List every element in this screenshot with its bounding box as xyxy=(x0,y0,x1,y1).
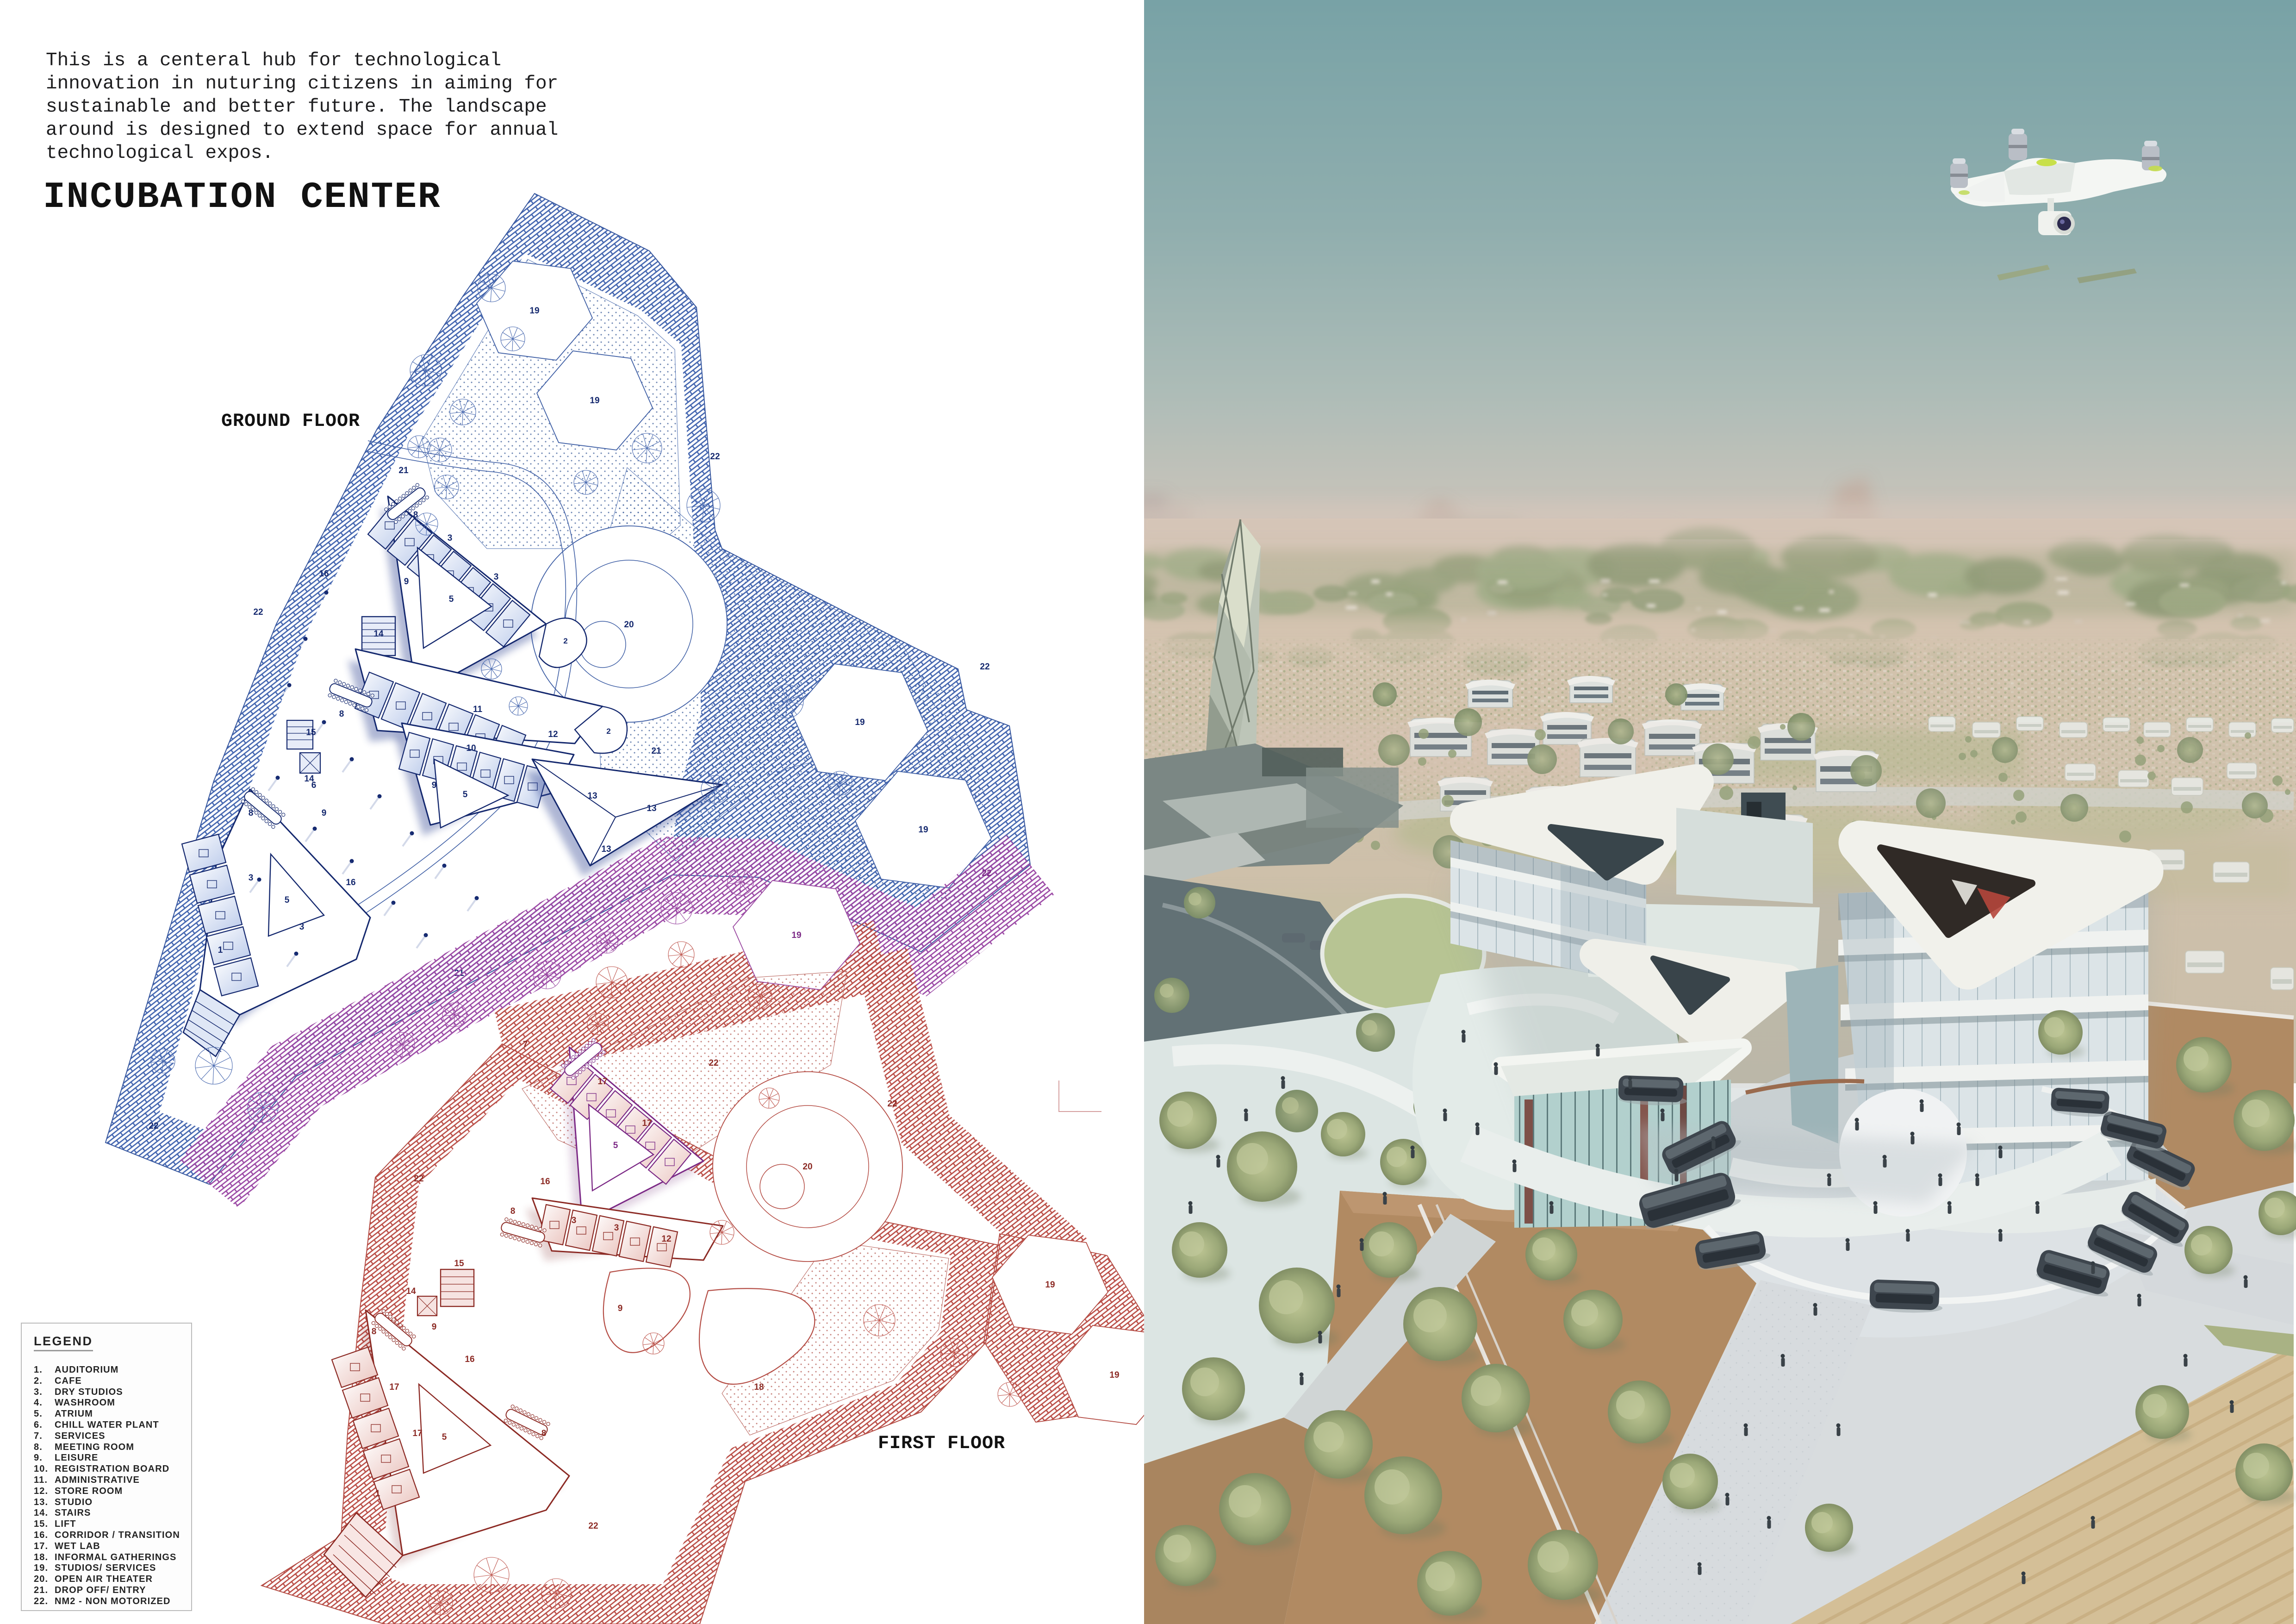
svg-text:22: 22 xyxy=(710,452,720,462)
svg-text:2: 2 xyxy=(563,637,567,645)
svg-text:12: 12 xyxy=(548,730,558,739)
svg-text:9: 9 xyxy=(618,1304,623,1313)
svg-text:5: 5 xyxy=(442,1432,447,1442)
svg-text:22: 22 xyxy=(709,1058,718,1068)
svg-text:22: 22 xyxy=(887,1099,897,1109)
svg-text:3: 3 xyxy=(614,1223,619,1233)
svg-text:17: 17 xyxy=(642,1118,652,1128)
svg-text:3: 3 xyxy=(572,1216,577,1225)
svg-text:13: 13 xyxy=(647,804,656,813)
svg-text:13: 13 xyxy=(587,791,597,801)
svg-text:22: 22 xyxy=(982,868,991,878)
svg-text:8: 8 xyxy=(413,510,418,520)
svg-text:8: 8 xyxy=(249,808,254,818)
svg-text:19: 19 xyxy=(590,396,599,406)
svg-text:5: 5 xyxy=(285,895,290,905)
svg-text:9: 9 xyxy=(432,1322,437,1332)
svg-text:16: 16 xyxy=(319,569,329,579)
svg-text:1: 1 xyxy=(375,1489,380,1499)
svg-text:15: 15 xyxy=(454,1259,464,1268)
svg-text:14: 14 xyxy=(373,629,384,639)
svg-text:16: 16 xyxy=(540,1177,550,1187)
svg-text:16: 16 xyxy=(465,1355,474,1364)
svg-text:8: 8 xyxy=(339,709,344,719)
svg-text:14: 14 xyxy=(406,1287,416,1296)
svg-text:19: 19 xyxy=(1045,1280,1055,1290)
svg-text:19: 19 xyxy=(918,825,928,835)
svg-text:5: 5 xyxy=(463,790,468,800)
svg-text:17: 17 xyxy=(412,1429,422,1438)
svg-text:9: 9 xyxy=(432,781,437,790)
svg-text:17: 17 xyxy=(389,1382,399,1392)
svg-text:22: 22 xyxy=(253,607,263,617)
svg-text:12: 12 xyxy=(661,1234,671,1244)
svg-text:5: 5 xyxy=(613,1141,618,1150)
svg-text:22: 22 xyxy=(149,1121,158,1131)
svg-text:20: 20 xyxy=(803,1162,812,1172)
svg-text:18: 18 xyxy=(754,1382,764,1392)
svg-text:9: 9 xyxy=(322,808,327,818)
svg-text:8: 8 xyxy=(510,1206,516,1216)
svg-text:21: 21 xyxy=(651,746,661,756)
svg-text:13: 13 xyxy=(601,844,611,854)
svg-text:3: 3 xyxy=(249,873,254,883)
svg-text:19: 19 xyxy=(855,718,865,727)
svg-text:6: 6 xyxy=(311,781,317,790)
svg-text:3: 3 xyxy=(448,533,453,543)
svg-text:2: 2 xyxy=(606,727,610,736)
svg-text:9: 9 xyxy=(404,577,409,587)
svg-text:19: 19 xyxy=(529,306,539,316)
svg-text:3: 3 xyxy=(299,922,305,932)
svg-text:16: 16 xyxy=(346,878,355,887)
svg-text:5: 5 xyxy=(449,594,454,604)
svg-text:8: 8 xyxy=(541,1429,547,1438)
svg-text:22: 22 xyxy=(980,662,989,672)
svg-text:20: 20 xyxy=(624,620,634,630)
svg-text:1: 1 xyxy=(218,945,223,955)
svg-text:11: 11 xyxy=(473,705,483,714)
svg-text:22: 22 xyxy=(414,1174,423,1184)
svg-text:8: 8 xyxy=(372,1327,377,1337)
svg-text:21: 21 xyxy=(398,466,409,475)
svg-text:19: 19 xyxy=(791,931,801,940)
svg-text:19: 19 xyxy=(1109,1370,1119,1380)
svg-text:7: 7 xyxy=(523,1040,528,1049)
svg-text:17: 17 xyxy=(597,1077,607,1087)
svg-text:3: 3 xyxy=(494,572,499,582)
svg-text:22: 22 xyxy=(588,1521,598,1531)
svg-text:10: 10 xyxy=(466,743,476,753)
svg-text:15: 15 xyxy=(306,728,316,737)
